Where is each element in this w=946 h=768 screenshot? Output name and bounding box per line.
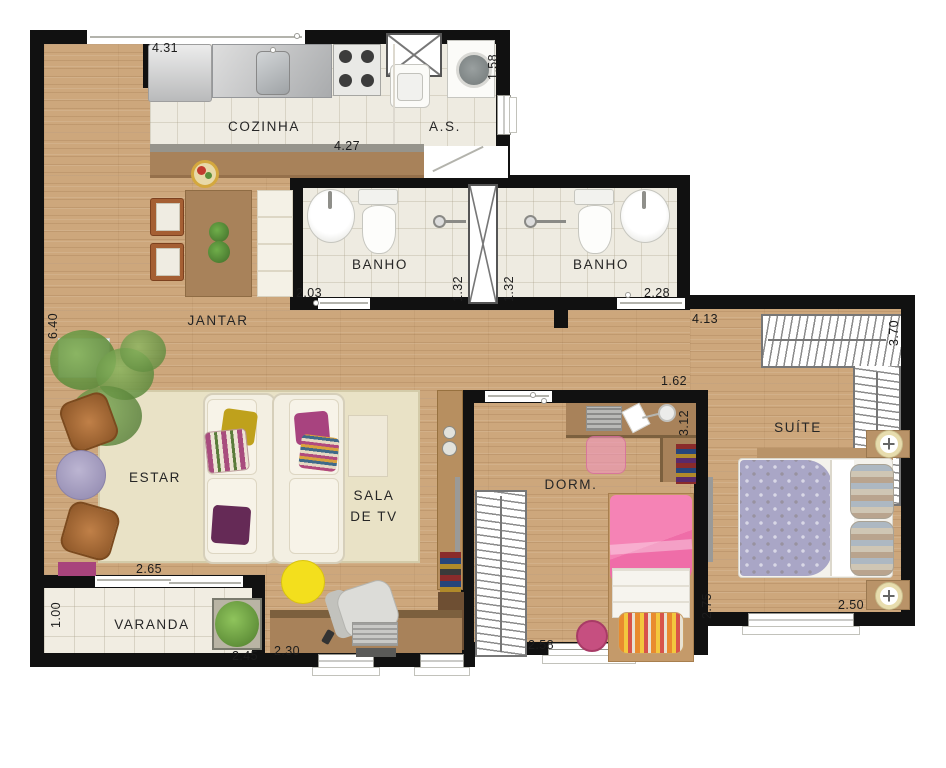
bath1-toilet-tank (358, 189, 398, 205)
wall-varanda-bottom (30, 653, 265, 667)
dining-chair-2-seat (156, 248, 180, 276)
dim-431: 4.31 (152, 41, 178, 55)
wall-top-a (44, 30, 87, 44)
stove-burner-2 (361, 50, 374, 63)
dorm-laptop (586, 406, 622, 431)
stove-burner-1 (339, 50, 352, 63)
dim-370: 3.70 (887, 310, 901, 346)
pillow-ikat (204, 428, 250, 474)
label-suite: SUÍTE (758, 420, 838, 435)
dining-chair-1-seat (156, 203, 180, 231)
living-window-sill-1 (312, 667, 380, 676)
wall-suite-top (677, 295, 915, 309)
fruit-green (205, 172, 212, 179)
bath1-faucet (328, 191, 332, 209)
bath2-faucet (642, 191, 646, 209)
suite-window-sill (742, 626, 860, 635)
as-window-sill (509, 97, 517, 133)
suite-closet-top-rail (768, 339, 886, 341)
dim-162: 1.62 (661, 374, 687, 388)
living-window-sill-2 (414, 667, 470, 676)
dim-132a: 1.32 (451, 268, 465, 302)
dim-245: 2.45 (232, 649, 258, 663)
desk-laptop (352, 622, 398, 646)
dim-158: 1.58 (486, 44, 500, 80)
bath2-door-leaf (620, 302, 682, 304)
dining-bench (257, 190, 293, 297)
label-varanda: VARANDA (102, 617, 202, 632)
dorm-chair-pink (586, 436, 626, 474)
dorm-hinge2 (541, 398, 547, 404)
dim-427: 4.27 (334, 139, 360, 153)
apartment-floor-plan: COZINHA A.S. BANHO BANHO JANTAR ESTAR SA… (0, 0, 946, 768)
dim-258: 2.58 (528, 638, 554, 652)
suite-closet-top (761, 314, 901, 368)
pillow-purple (211, 505, 252, 546)
as-door-area (424, 146, 508, 178)
table-plant-2 (208, 241, 230, 263)
dim-230: 2.30 (274, 644, 300, 658)
varanda-door-panel1 (97, 579, 171, 581)
side-table (348, 415, 388, 477)
label-cozinha: COZINHA (214, 119, 314, 134)
dim-203: 2.03 (296, 286, 322, 300)
wall-left-outer (30, 30, 44, 667)
sofa-right-cushion-2 (289, 478, 339, 554)
tv-panel-knob-2 (442, 441, 457, 456)
suite-lamp-top (876, 431, 902, 457)
label-sala-tv: SALA DE TV (339, 486, 409, 528)
pouf-yellow (281, 560, 325, 604)
wall-bath-right (677, 175, 690, 310)
pouf-lavender (56, 450, 106, 500)
bath1-shower-rail (445, 220, 466, 223)
tv-panel-books (440, 552, 461, 592)
dorm-hinge (530, 392, 536, 398)
plant-blob-4 (120, 330, 166, 372)
label-jantar: JANTAR (178, 313, 258, 328)
dorm-pouf (576, 620, 608, 652)
wall-corridor-stub (554, 308, 568, 328)
bath1-hinge (313, 300, 319, 306)
varanda-plant (215, 601, 259, 647)
peninsula-edge (150, 144, 424, 152)
tv-screen-living (455, 477, 460, 562)
laundry-tank-basin (397, 73, 423, 101)
magenta-mat (58, 562, 96, 576)
wall-suite-right (901, 295, 915, 626)
bath2-toilet-bowl (578, 205, 612, 254)
dim-228: 2.28 (644, 286, 670, 300)
varanda-door-panel2 (169, 582, 241, 584)
dim-640: 6.40 (46, 303, 60, 339)
dorm-striped-pillow (618, 612, 684, 654)
bath2-shower-rail (536, 220, 566, 223)
living-window-2 (420, 654, 464, 668)
suite-lamp-bottom (876, 583, 902, 609)
label-dorm: DORM. (531, 477, 611, 492)
dorm-wardrobe-rail (500, 496, 502, 652)
floor-entry (44, 44, 150, 175)
kitchen-as-divider (393, 44, 395, 144)
dorm-bookshelf (676, 444, 696, 484)
dorm-lamp-shade (658, 404, 676, 422)
stove-burner-4 (361, 74, 374, 87)
suite-tv (708, 477, 713, 562)
bath2-hinge (625, 292, 631, 298)
label-as: A.S. (415, 119, 475, 134)
shaft-x-icon (470, 186, 496, 302)
dorm-door-leaf (488, 395, 549, 397)
dorm-bed-sheet (612, 568, 690, 618)
dim-265: 2.65 (136, 562, 162, 576)
dim-250: 2.50 (838, 598, 864, 612)
bath-shaft (468, 184, 498, 304)
bath2-toilet-tank (574, 189, 614, 205)
label-banho2: BANHO (561, 257, 641, 272)
kitchen-faucet (270, 47, 276, 53)
suite-pillow-1 (850, 464, 894, 519)
table-plant-1 (209, 222, 229, 242)
dim-132b: 1.32 (502, 268, 516, 302)
suite-pillow-2 (850, 521, 894, 576)
label-estar: ESTAR (115, 470, 195, 485)
entrance-door-leaf (90, 36, 302, 38)
dim-100: 1.00 (49, 592, 63, 628)
label-banho1: BANHO (340, 257, 420, 272)
bath1-toilet-bowl (362, 205, 396, 254)
tv-panel-knob-1 (443, 426, 456, 439)
desk-laptop-base (356, 648, 396, 657)
stove-burner-3 (339, 74, 352, 87)
dim-275: 2.75 (700, 583, 714, 619)
pillow-striped (298, 434, 340, 472)
dim-312: 3.12 (677, 402, 691, 436)
suite-window (748, 613, 854, 627)
suite-bed-duvet (740, 460, 832, 576)
bath1-door-leaf (320, 302, 368, 304)
dim-413: 4.13 (692, 312, 718, 326)
kitchen-sink (256, 51, 290, 95)
entrance-hinge-dot (294, 33, 300, 39)
